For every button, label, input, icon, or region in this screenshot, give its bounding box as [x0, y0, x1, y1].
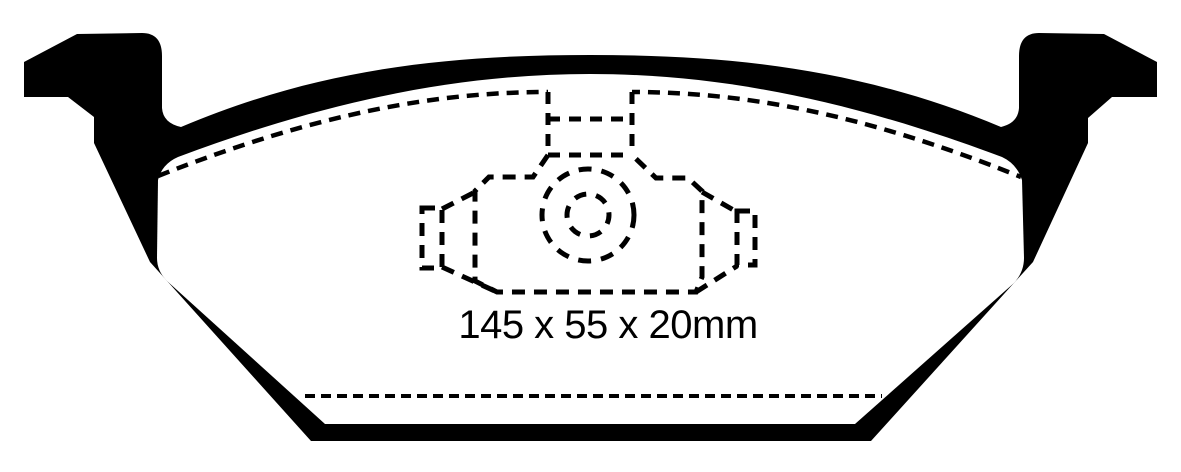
brake-pad-diagram: 145 x 55 x 20mm [0, 0, 1181, 472]
brake-pad-drawing-canvas: 145 x 55 x 20mm [0, 0, 1181, 472]
pad-friction-face [157, 74, 1024, 424]
dimension-label: 145 x 55 x 20mm [458, 303, 757, 347]
